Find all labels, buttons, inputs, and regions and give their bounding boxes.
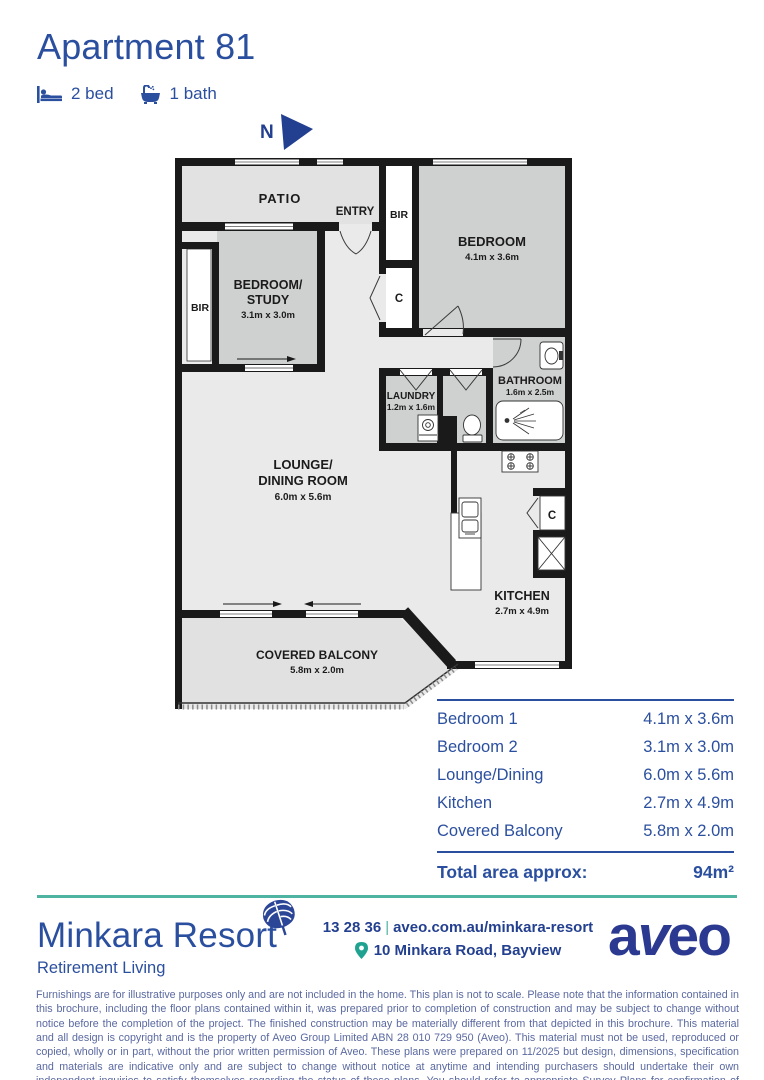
stove xyxy=(502,451,538,472)
kitchen-dims: 2.7m x 4.9m xyxy=(495,606,549,617)
balcony-label: COVERED BALCONY xyxy=(256,648,378,662)
brochure-page: Apartment 81 2 bed 1 bath xyxy=(0,0,764,1080)
table-row: Covered Balcony 5.8m x 2.0m xyxy=(437,818,734,846)
hall-cupboard-label: C xyxy=(395,293,403,305)
north-indicator: N xyxy=(250,104,322,161)
address-text: 10 Minkara Road, Bayview xyxy=(374,939,562,962)
contact-separator: | xyxy=(381,919,393,936)
bed-feature-label: 2 bed xyxy=(71,84,114,104)
room-size: 6.0m x 5.6m xyxy=(643,766,734,785)
room-name: Bedroom 2 xyxy=(437,738,518,757)
toilet xyxy=(464,415,481,435)
contact-line2: 10 Minkara Road, Bayview xyxy=(312,939,604,962)
room-name: Kitchen xyxy=(437,794,492,813)
table-row: Lounge/Dining 6.0m x 5.6m xyxy=(437,761,734,789)
entry-label: ENTRY xyxy=(336,206,375,218)
bedroom-study-label1: BEDROOM/ xyxy=(234,278,303,292)
footer-divider xyxy=(37,895,737,898)
lounge-label1: LOUNGE/ xyxy=(273,457,333,472)
kitchen-label: KITCHEN xyxy=(494,589,550,603)
bathroom-dims: 1.6m x 2.5m xyxy=(506,387,555,397)
north-arrow-icon xyxy=(281,114,313,150)
room-name: Bedroom 1 xyxy=(437,710,518,729)
bedroom-label: BEDROOM xyxy=(458,234,526,249)
resort-name: Minkara Resort xyxy=(37,916,277,956)
bir-study-label: BIR xyxy=(191,302,210,314)
total-area-row: Total area approx: 94m² xyxy=(437,851,734,883)
aveo-logo-a: a xyxy=(608,904,638,968)
bathroom-label: BATHROOM xyxy=(498,375,562,387)
resort-tagline: Retirement Living xyxy=(37,959,277,978)
laundry-dims: 1.2m x 1.6m xyxy=(387,402,436,412)
contact-block: 13 28 36|aveo.com.au/minkara-resort 10 M… xyxy=(312,916,604,963)
bedroom-study-dims: 3.1m x 3.0m xyxy=(241,310,295,321)
total-area-label: Total area approx: xyxy=(437,862,587,883)
bedroom-dims: 4.1m x 3.6m xyxy=(465,252,519,263)
balcony-dims: 5.8m x 2.0m xyxy=(290,665,344,676)
bath-icon xyxy=(140,85,161,104)
bed-feature: 2 bed xyxy=(37,84,114,104)
room-size: 2.7m x 4.9m xyxy=(643,794,734,813)
room-name: Covered Balcony xyxy=(437,822,563,841)
room-name: Lounge/Dining xyxy=(437,766,543,785)
table-row: Kitchen 2.7m x 4.9m xyxy=(437,790,734,818)
bed-icon xyxy=(37,86,62,103)
bath-feature-label: 1 bath xyxy=(170,84,217,104)
kitchen-cupboard-label: C xyxy=(548,510,556,522)
legal-disclaimer: Furnishings are for illustrative purpose… xyxy=(36,988,739,1080)
aveo-logo: aveo xyxy=(608,903,730,969)
room-size: 3.1m x 3.0m xyxy=(643,738,734,757)
page-title: Apartment 81 xyxy=(37,26,256,68)
aveo-logo-eo: eo xyxy=(667,904,730,968)
resort-brand: Minkara Resort Retirement Living xyxy=(37,916,277,978)
laundry-label: LAUNDRY xyxy=(387,391,436,402)
dimensions-table: Bedroom 1 4.1m x 3.6m Bedroom 2 3.1m x 3… xyxy=(437,699,734,883)
north-label: N xyxy=(260,122,274,143)
website-link[interactable]: aveo.com.au/minkara-resort xyxy=(393,919,593,936)
feature-summary: 2 bed 1 bath xyxy=(37,84,217,104)
patio-label: PATIO xyxy=(259,191,302,206)
lounge-label2: DINING ROOM xyxy=(258,473,348,488)
table-row: Bedroom 1 4.1m x 3.6m xyxy=(437,705,734,733)
monstera-leaf-icon xyxy=(258,897,300,937)
phone-number: 13 28 36 xyxy=(323,919,381,936)
room-size: 5.8m x 2.0m xyxy=(643,822,734,841)
floor-plan: PATIO ENTRY BIR BEDROOM/ STUDY 3.1m x 3.… xyxy=(175,158,575,714)
bedroom-study-label2: STUDY xyxy=(247,293,290,307)
total-area-value: 94m² xyxy=(693,862,734,883)
location-pin-icon xyxy=(355,942,368,959)
bir-bedroom-label: BIR xyxy=(390,209,409,221)
lounge-dims: 6.0m x 5.6m xyxy=(275,492,332,503)
aveo-logo-v: v xyxy=(638,904,668,968)
table-row: Bedroom 2 3.1m x 3.0m xyxy=(437,733,734,761)
room-size: 4.1m x 3.6m xyxy=(643,710,734,729)
contact-line1: 13 28 36|aveo.com.au/minkara-resort xyxy=(312,916,604,939)
bath-feature: 1 bath xyxy=(140,84,217,104)
